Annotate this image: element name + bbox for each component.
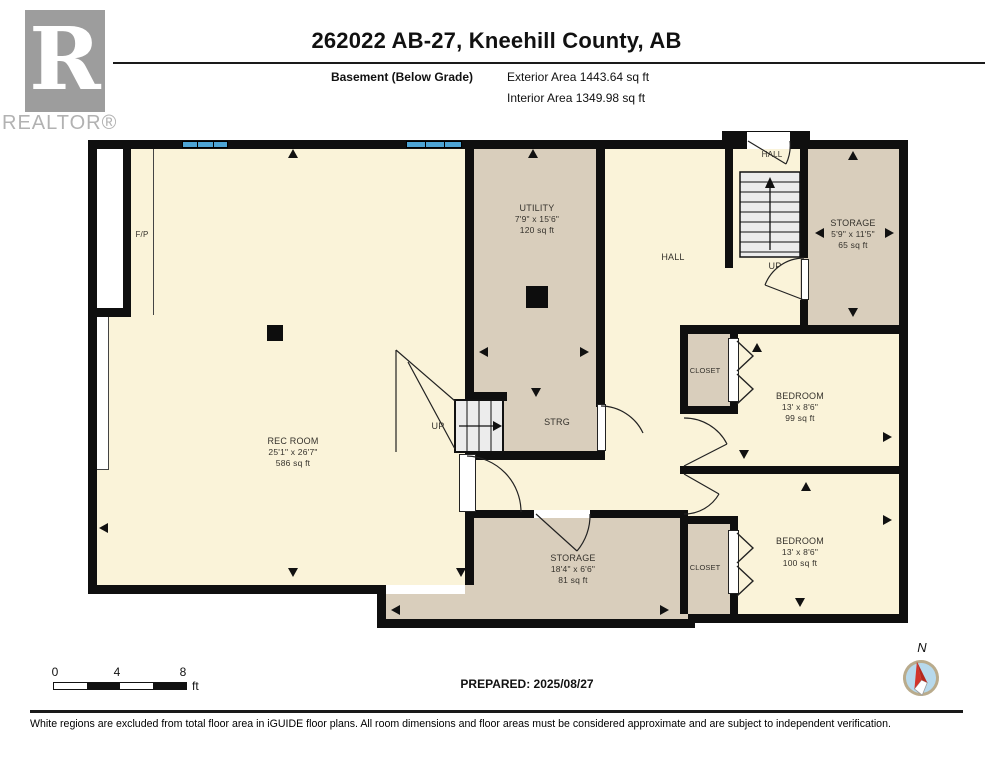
scale-tick-8: 8: [176, 665, 190, 679]
column-post: [267, 325, 283, 341]
room-dims: 25'1" x 26'7": [218, 447, 368, 458]
column-post: [526, 286, 548, 308]
room-dims: 13' x 8'6": [730, 402, 870, 413]
wall-segment: [596, 148, 605, 407]
room-storage-lower-ext: [385, 594, 465, 619]
scale-bar: [53, 682, 187, 690]
realtor-logo-letter: R: [29, 9, 100, 110]
room-dims: 13' x 8'6": [730, 547, 870, 558]
room-area: 586 sq ft: [218, 458, 368, 469]
realtor-logo: R: [25, 10, 105, 112]
brand-label: REALTOR®: [2, 112, 122, 135]
room-dims: 7'9" x 15'6": [477, 214, 597, 225]
exterior-area: Exterior Area 1443.64 sq ft: [507, 70, 649, 84]
hall-upper-label: HALL: [740, 150, 804, 159]
excluded-region: [96, 148, 123, 308]
room-dims: 5'9" x 11'5": [793, 229, 913, 240]
room-name: BEDROOM: [730, 391, 870, 402]
room-area: 65 sq ft: [793, 240, 913, 251]
wall-segment: [465, 451, 605, 460]
up-label-upper: UP: [745, 261, 805, 272]
bedroom-1-label: BEDROOM 13' x 8'6" 99 sq ft: [730, 391, 870, 424]
compass-north-label: N: [912, 640, 932, 655]
wall-segment: [465, 392, 507, 401]
fireplace-label: F/P: [124, 230, 160, 239]
door-opening: [747, 132, 790, 149]
hall-label: HALL: [613, 252, 733, 263]
wall-segment: [688, 614, 908, 623]
wall-segment: [377, 619, 695, 628]
wall-segment: [96, 308, 131, 317]
wall-segment: [88, 140, 97, 593]
room-name: BEDROOM: [730, 536, 870, 547]
room-name: UTILITY: [477, 203, 597, 214]
room-area: 120 sq ft: [477, 225, 597, 236]
up-label-center: UP: [410, 421, 466, 432]
room-area: 99 sq ft: [730, 413, 870, 424]
wall-segment: [680, 325, 908, 334]
storage-lower-label: STORAGE 18'4" x 6'6" 81 sq ft: [503, 553, 643, 586]
storage-upper-label: STORAGE 5'9" x 11'5" 65 sq ft: [793, 218, 913, 251]
disclaimer-text: White regions are excluded from total fl…: [30, 718, 965, 730]
page-title: 262022 AB-27, Kneehill County, AB: [0, 28, 993, 54]
wall-segment: [465, 148, 474, 400]
wall-segment: [590, 510, 688, 518]
strg-label: STRG: [517, 417, 597, 428]
room-hall: [604, 148, 800, 333]
window-icon: [182, 141, 228, 148]
rec-room-label: REC ROOM 25'1" x 26'7" 586 sq ft: [218, 436, 368, 469]
header-rule: [113, 62, 985, 64]
door-panel: [597, 404, 606, 451]
wall-segment: [725, 140, 733, 268]
wall-segment: [899, 140, 908, 623]
room-name: STORAGE: [793, 218, 913, 229]
floor-label: Basement (Below Grade): [280, 70, 473, 84]
room-dims: 18'4" x 6'6": [503, 564, 643, 575]
room-name: STORAGE: [503, 553, 643, 564]
excluded-region: [96, 317, 109, 470]
scale-unit: ft: [192, 679, 199, 693]
room-area: 81 sq ft: [503, 575, 643, 586]
utility-label: UTILITY 7'9" x 15'6" 120 sq ft: [477, 203, 597, 236]
wall-segment: [680, 466, 908, 474]
wall-segment: [88, 585, 385, 594]
room-area: 100 sq ft: [730, 558, 870, 569]
prepared-date: PREPARED: 2025/08/27: [397, 677, 657, 691]
footer-rule: [30, 710, 963, 713]
bedroom-2-label: BEDROOM 13' x 8'6" 100 sq ft: [730, 536, 870, 569]
window-icon: [406, 141, 462, 148]
closet-2-label: CLOSET: [678, 563, 732, 572]
door-panel: [459, 454, 476, 512]
scale-tick-0: 0: [48, 665, 62, 679]
scale-tick-4: 4: [110, 665, 124, 679]
closet-1-label: CLOSET: [678, 366, 732, 375]
room-name: REC ROOM: [218, 436, 368, 447]
compass-icon: [901, 658, 941, 699]
interior-area: Interior Area 1349.98 sq ft: [507, 91, 645, 105]
